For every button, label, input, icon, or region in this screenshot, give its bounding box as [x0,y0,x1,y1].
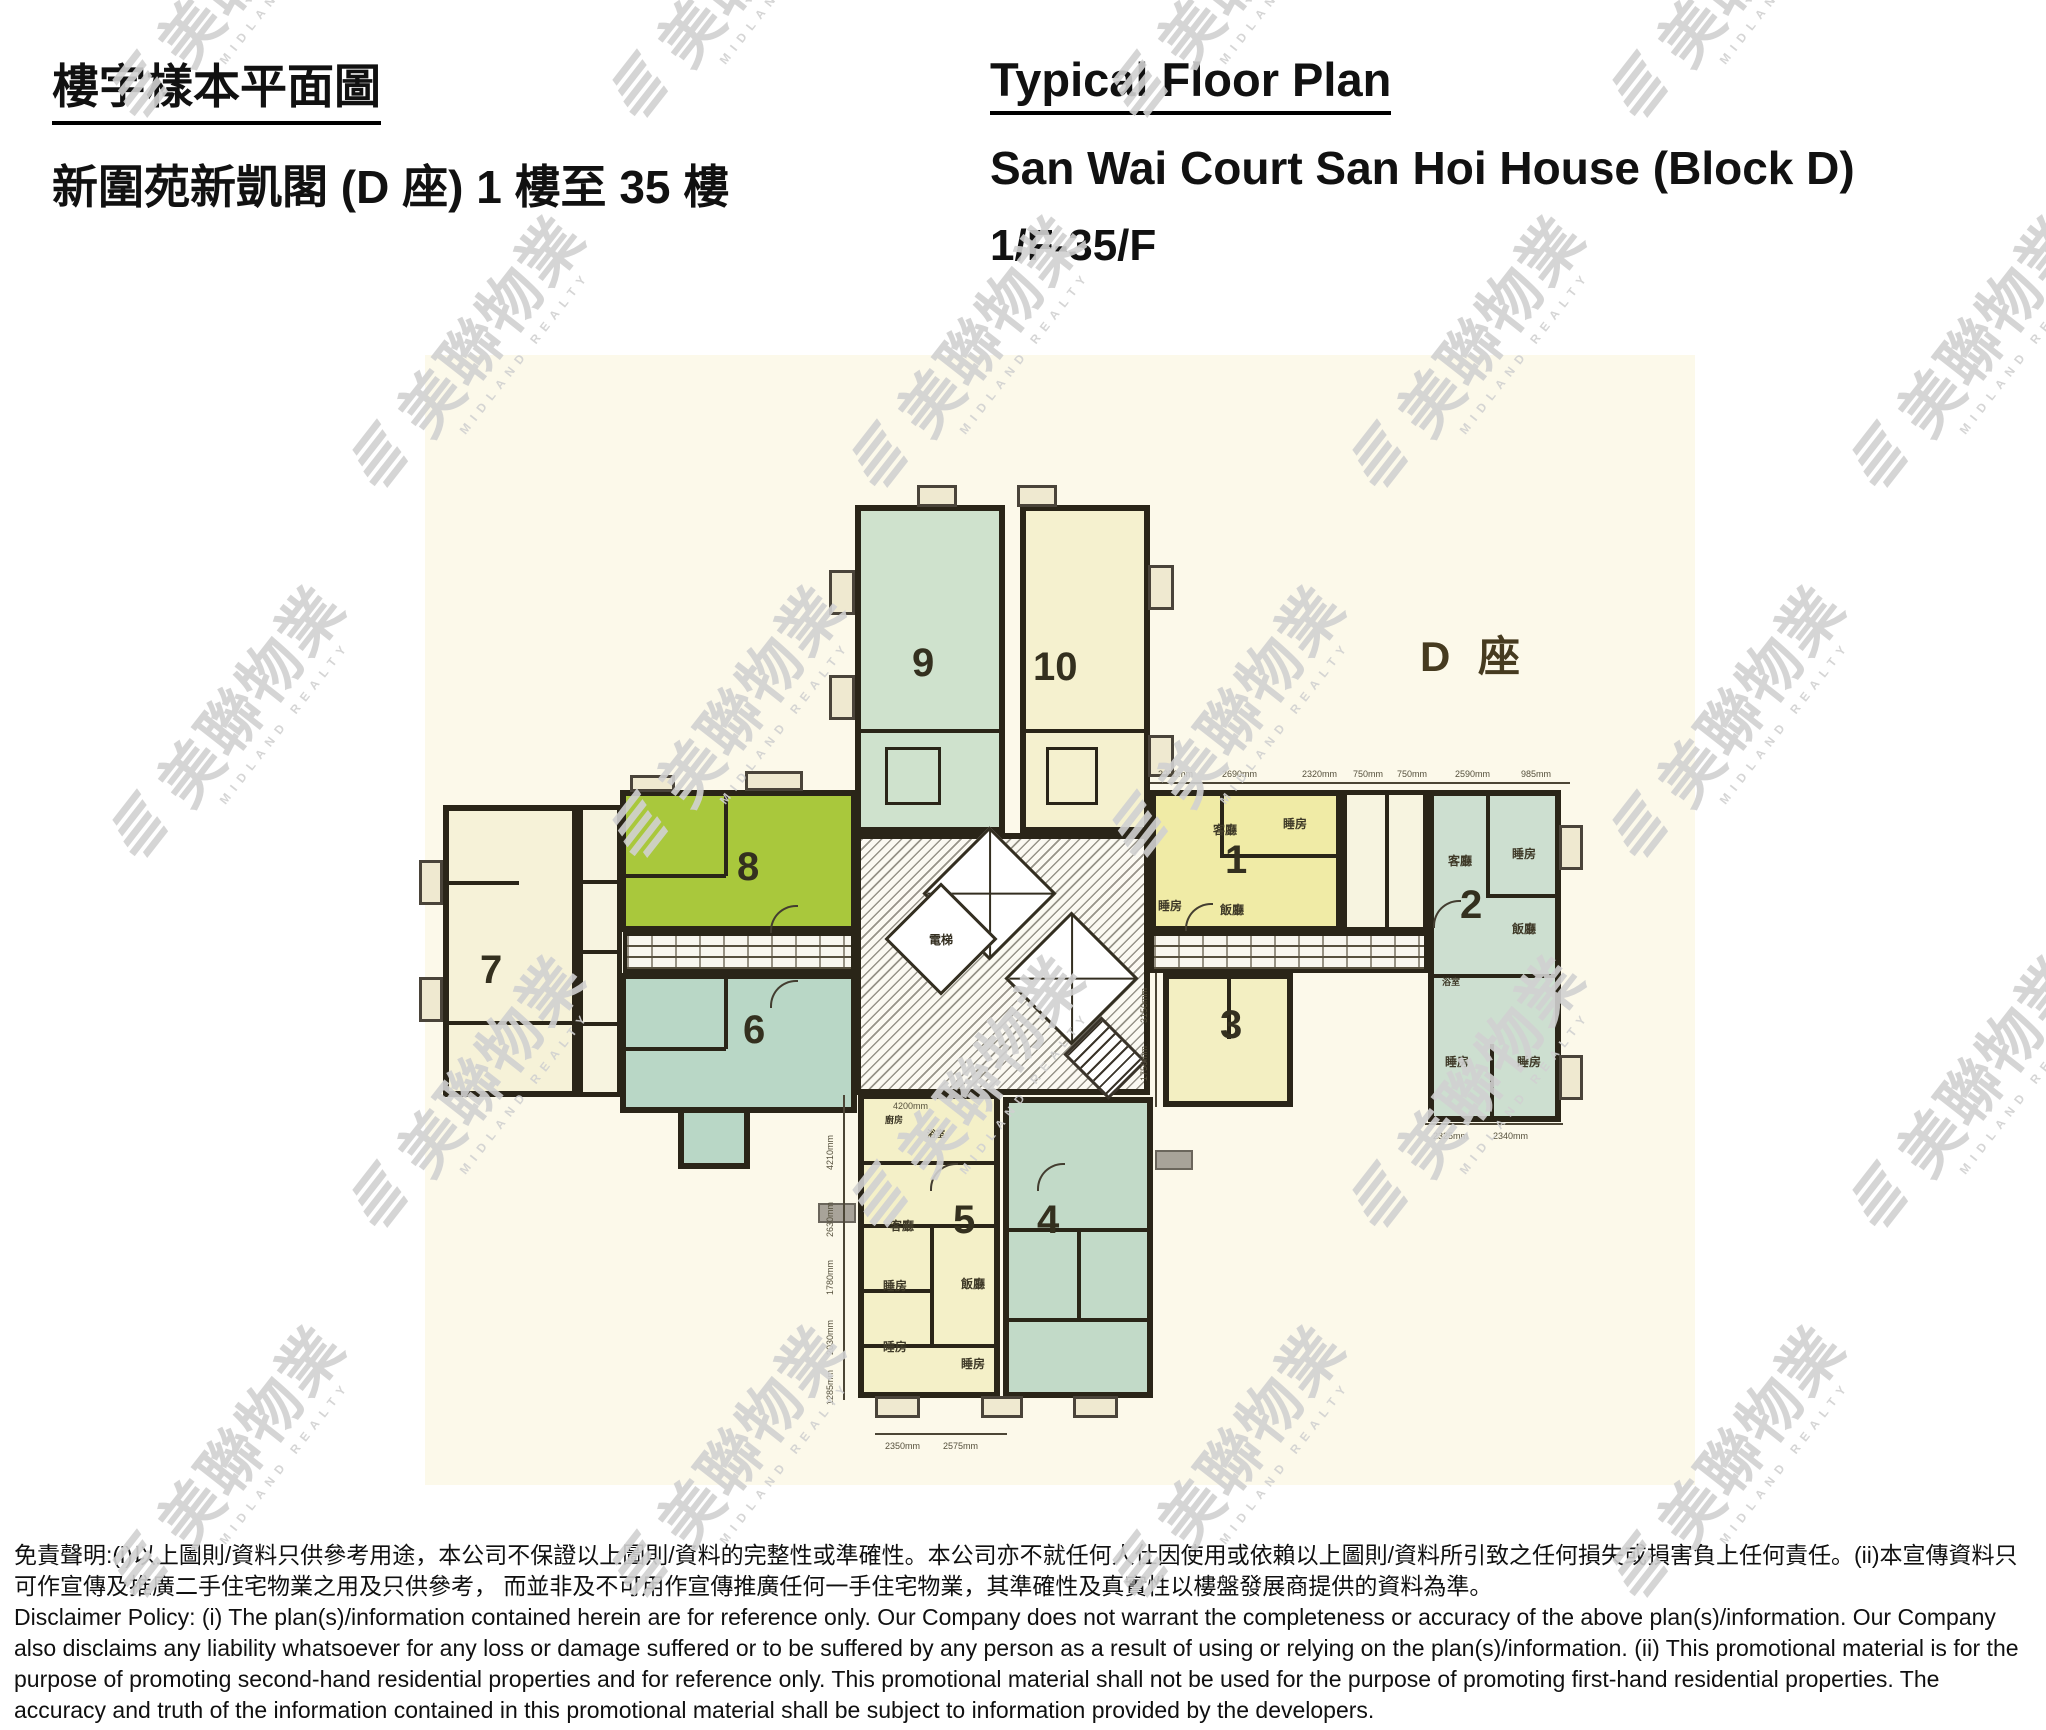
window-tab [829,675,855,720]
wall-partition [583,1022,617,1026]
unit-2 [1428,790,1561,1122]
unit-number: 8 [737,847,759,887]
watermark-zh-text: 美聯物業 [1873,194,2046,451]
window-tab [1017,485,1057,507]
room-label-kitchen: 廚房 [885,1113,903,1126]
wall-partition [1077,1228,1081,1322]
dimension-label: 2575mm [943,1441,978,1451]
unit-6 [620,973,857,1113]
header-chinese: 樓宇樣本平面圖 新圍苑新凱閣 (D 座) 1 樓至 35 樓 [52,48,729,217]
unit-number: 10 [1033,647,1078,687]
page-title-zh: 樓宇樣本平面圖 [52,48,381,125]
midland-logo-icon [100,779,190,869]
unit-4 [1003,1097,1153,1398]
disclaimer-en: Disclaimer Policy: (i) The plan(s)/infor… [14,1602,2034,1726]
unit-number: 9 [912,643,934,683]
dimension-label: 4210mm [825,1135,835,1170]
wall-partition [1486,796,1490,896]
dimension-label: 2325mm [1433,1131,1468,1141]
window-tab [829,570,855,615]
bathroom-outline [1046,747,1098,805]
watermark-zh-text: 美聯物業 [133,1304,362,1561]
watermark-zh-text: 美聯物業 [1873,934,2046,1191]
dimension-label: 1780mm [825,1260,835,1295]
window-tab [875,1396,920,1418]
window-tab [1559,825,1583,870]
window-tab [419,860,443,905]
block-label: D 座 [1420,623,1528,684]
unit-number: 5 [953,1200,975,1240]
dimension-label: 2350mm [885,1441,920,1451]
dimension-label: 2340mm [1493,1131,1528,1141]
room-label-bedroom: 睡房 [883,1277,907,1294]
service-rooms-7 [578,805,622,1097]
core-lobby: 電梯 [855,833,1150,1095]
dimension-label: 4200mm [893,1101,928,1111]
wall-partition [449,1021,572,1025]
lift-shaft [1004,911,1138,1045]
watermark-en-text: MIDLAND REALTY [217,1330,391,1547]
room-label-bedroom: 睡房 [1445,1053,1469,1070]
unit-number: 4 [1037,1200,1059,1240]
dimension-line [1155,973,1157,1107]
unit-number: 6 [743,1010,765,1050]
room-label-living: 客廳 [890,1217,914,1234]
watermark-en-text: MIDLAND REALTY [1957,960,2046,1177]
dimension-label: 2250mm [1158,769,1193,779]
midland-logo-icon [1840,409,1930,499]
dimension-label: 3150mm [1139,988,1149,1023]
room-label-bath: 浴室 [1442,975,1460,988]
watermark-en-text: MIDLAND REALTY [717,0,891,67]
dimension-line [875,1433,1007,1435]
window-tab [1073,1396,1118,1418]
dimension-label: 2030mm [825,1320,835,1355]
room-label-bath: 浴室 [927,1127,945,1140]
dimension-label: 1750mm [1139,1046,1149,1081]
watermark-en-text: MIDLAND REALTY [1957,220,2046,437]
wall-partition [449,881,519,885]
page-subtitle-en: San Wai Court San Hoi House (Block D) [990,141,1855,195]
wall-partition [626,1047,726,1051]
midland-watermark: 美聯物業MIDLAND REALTY [90,537,390,882]
page-subtitle-zh: 新圍苑新凱閣 (D 座) 1 樓至 35 樓 [52,151,729,217]
page-floors-en: 1/F-35/F [990,221,1855,271]
service-rooms-1-2 [1342,790,1428,932]
room-label-dining: 飯廳 [961,1275,985,1292]
room-label-bedroom: 睡房 [961,1355,985,1372]
window-tab [745,771,803,791]
wall-partition [626,874,726,878]
window-tab [1559,1055,1583,1100]
room-label-dining: 飯廳 [1220,901,1244,918]
watermark-en-text: MIDLAND REALTY [217,590,391,807]
room-label-bedroom: 睡房 [1512,845,1536,862]
room-label-dining: 飯廳 [1512,920,1536,937]
watermark-zh-text: 美聯物業 [133,564,362,821]
dimension-label: 2320mm [1302,769,1337,779]
wall-partition [1385,795,1389,927]
midland-watermark: 美聯物業MIDLAND REALTY [1830,167,2046,512]
header-english: Typical Floor Plan San Wai Court San Hoi… [990,52,1855,271]
room-label-living: 客廳 [1448,852,1472,869]
room-label-living: 客廳 [1213,821,1237,838]
dimension-label: 985mm [1521,769,1551,779]
wall-partition [724,979,728,1049]
dimension-label: 2630mm [825,1202,835,1237]
dimension-label: 750mm [1353,769,1383,779]
corridor-left [623,932,855,973]
page-title-en: Typical Floor Plan [990,52,1391,115]
unit-number: 1 [1225,840,1247,880]
bathroom-outline [885,747,941,805]
wall-partition [930,1224,934,1348]
wall-partition [864,1161,994,1165]
wall-partition [724,796,728,876]
dimension-line [1425,1123,1563,1125]
dimension-line [1150,782,1570,784]
ac-stub [818,1203,856,1223]
disclaimer-block: 免責聲明:(i)以上圖則/資料只供參考用途，本公司不保證以上圖則/資料的完整性或… [14,1540,2034,1726]
wall-partition [1026,729,1144,733]
dimension-label: 2590mm [1455,769,1490,779]
wall-partition [583,950,617,954]
wall-partition [861,729,999,733]
wall-partition [1486,894,1556,898]
window-tab [1148,565,1174,610]
window-tab [630,775,675,792]
midland-logo-icon [340,409,430,499]
ac-stub [1155,1150,1193,1170]
unit-6-annex [678,1107,750,1169]
room-label-bedroom: 睡房 [1283,815,1307,832]
unit-number: 2 [1460,885,1482,925]
window-tab [419,977,443,1022]
wall-partition [1490,1044,1494,1116]
watermark-en-text: MIDLAND REALTY [1717,1330,1891,1547]
unit-number: 7 [480,950,502,990]
dimension-label: 2690mm [1222,769,1257,779]
midland-logo-icon [1840,1149,1930,1239]
midland-logo-icon [340,1149,430,1239]
midland-watermark: 美聯物業MIDLAND REALTY [1830,907,2046,1252]
dimension-label: 750mm [1397,769,1427,779]
unit-number: 3 [1220,1005,1242,1045]
window-tab [981,1396,1023,1418]
corridor-right [1150,932,1428,973]
room-label-bedroom: 睡房 [883,1338,907,1355]
window-tab [917,485,957,507]
room-label-bedroom: 睡房 [1517,1053,1541,1070]
wall-partition [583,880,617,884]
dimension-label: 1285mm [825,1370,835,1405]
room-label-bedroom: 睡房 [1158,897,1182,914]
lift-label: 電梯 [904,902,978,976]
watermark-en-text: MIDLAND REALTY [1717,590,1891,807]
unit-7 [443,805,578,1097]
floor-plan: 9 10 1 2 3 7 8 6 [425,355,1695,1485]
dimension-line [843,1095,845,1400]
disclaimer-zh: 免責聲明:(i)以上圖則/資料只供參考用途，本公司不保證以上圖則/資料的完整性或… [14,1540,2034,1602]
